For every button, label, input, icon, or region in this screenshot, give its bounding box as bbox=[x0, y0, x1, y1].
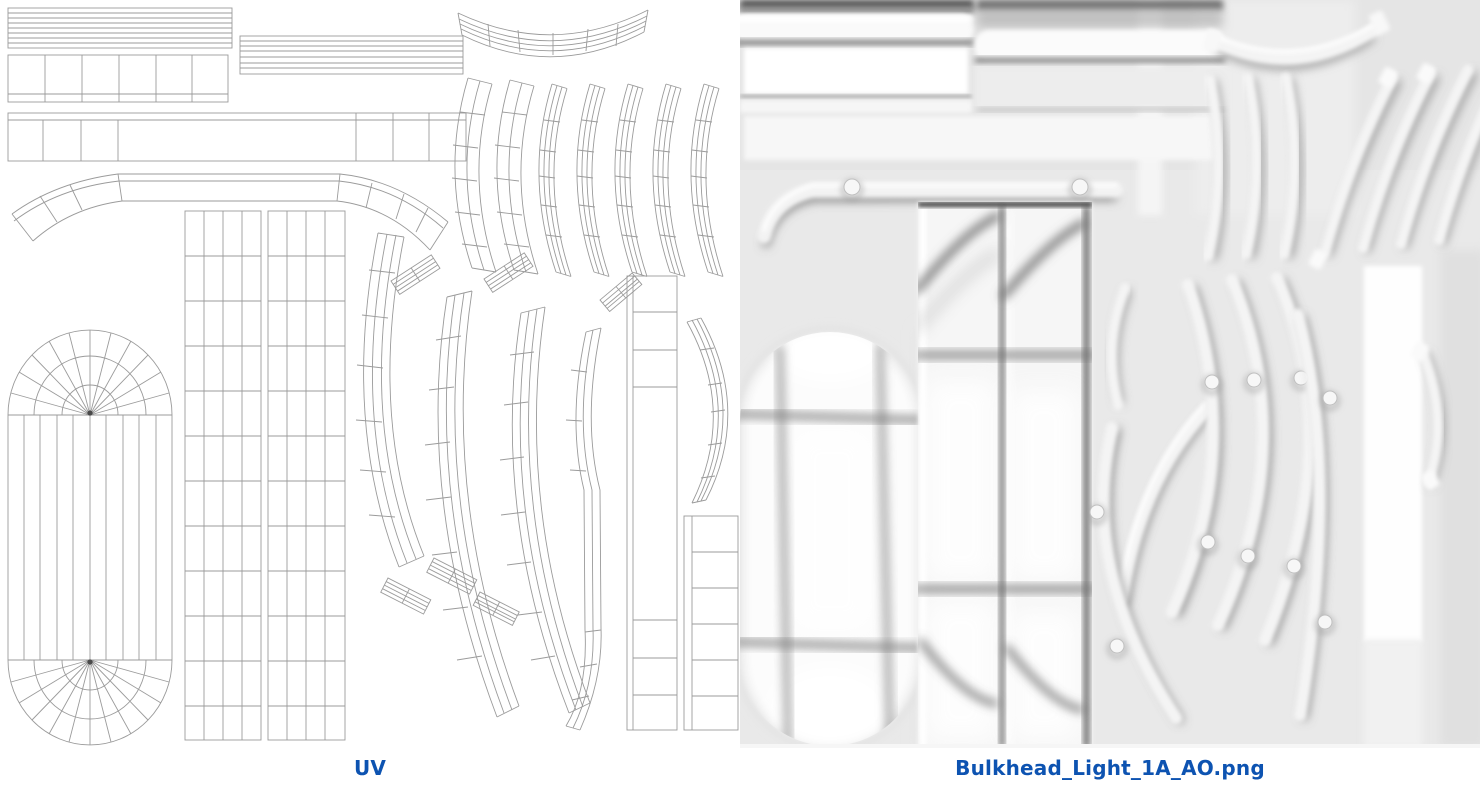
uv-right-arc-band bbox=[687, 318, 728, 503]
uv-arc-fan bbox=[452, 78, 723, 277]
ao-texture-image bbox=[740, 0, 1480, 748]
uv-arch-band bbox=[12, 174, 448, 250]
uv-stadium-island bbox=[8, 330, 172, 745]
uv-grid-rect-2 bbox=[268, 211, 345, 740]
texture-comparison-figure: UV Bulkhead_Light_1A_AO.png bbox=[0, 0, 1480, 800]
uv-stub-band-3 bbox=[600, 273, 642, 311]
uv-stub-band-5 bbox=[427, 558, 477, 594]
uv-stub-band-6 bbox=[473, 592, 519, 625]
uv-arc-fan-narrow bbox=[539, 84, 723, 277]
uv-stub-band-2 bbox=[484, 253, 533, 293]
ao-top-left-bars bbox=[740, 0, 974, 113]
uv-tall-column bbox=[627, 276, 677, 730]
ao-caption: Bulkhead_Light_1A_AO.png bbox=[740, 748, 1480, 800]
uv-sag-band-top bbox=[458, 10, 648, 57]
ao-right-column bbox=[1364, 266, 1422, 748]
uv-ladder-block bbox=[8, 55, 228, 102]
uv-curved-band-4 bbox=[566, 328, 601, 730]
uv-wireframe-image bbox=[0, 0, 740, 748]
uv-caption-text: UV bbox=[354, 756, 386, 780]
ao-center-rect bbox=[914, 202, 1094, 748]
ao-caption-text: Bulkhead_Light_1A_AO.png bbox=[955, 756, 1265, 780]
uv-grid-rect-1 bbox=[185, 211, 261, 740]
uv-stripe-block-top-left bbox=[8, 8, 232, 48]
uv-curved-band-2 bbox=[425, 291, 519, 717]
uv-long-rect-strip bbox=[8, 113, 466, 161]
ao-panel bbox=[740, 0, 1480, 748]
uv-stripe-block-top-mid bbox=[240, 36, 463, 74]
ao-top-right-bars bbox=[975, 0, 1225, 111]
ao-stadium-shape bbox=[740, 322, 926, 748]
uv-stub-band-1 bbox=[391, 255, 440, 295]
uv-curved-band-3 bbox=[500, 307, 590, 713]
uv-stub-band-4 bbox=[381, 578, 431, 614]
uv-panel bbox=[0, 0, 740, 748]
ao-wide-faint-bar bbox=[744, 116, 1220, 160]
uv-segment-column bbox=[684, 516, 738, 730]
uv-caption: UV bbox=[0, 748, 740, 800]
uv-curved-band-1 bbox=[356, 233, 424, 567]
